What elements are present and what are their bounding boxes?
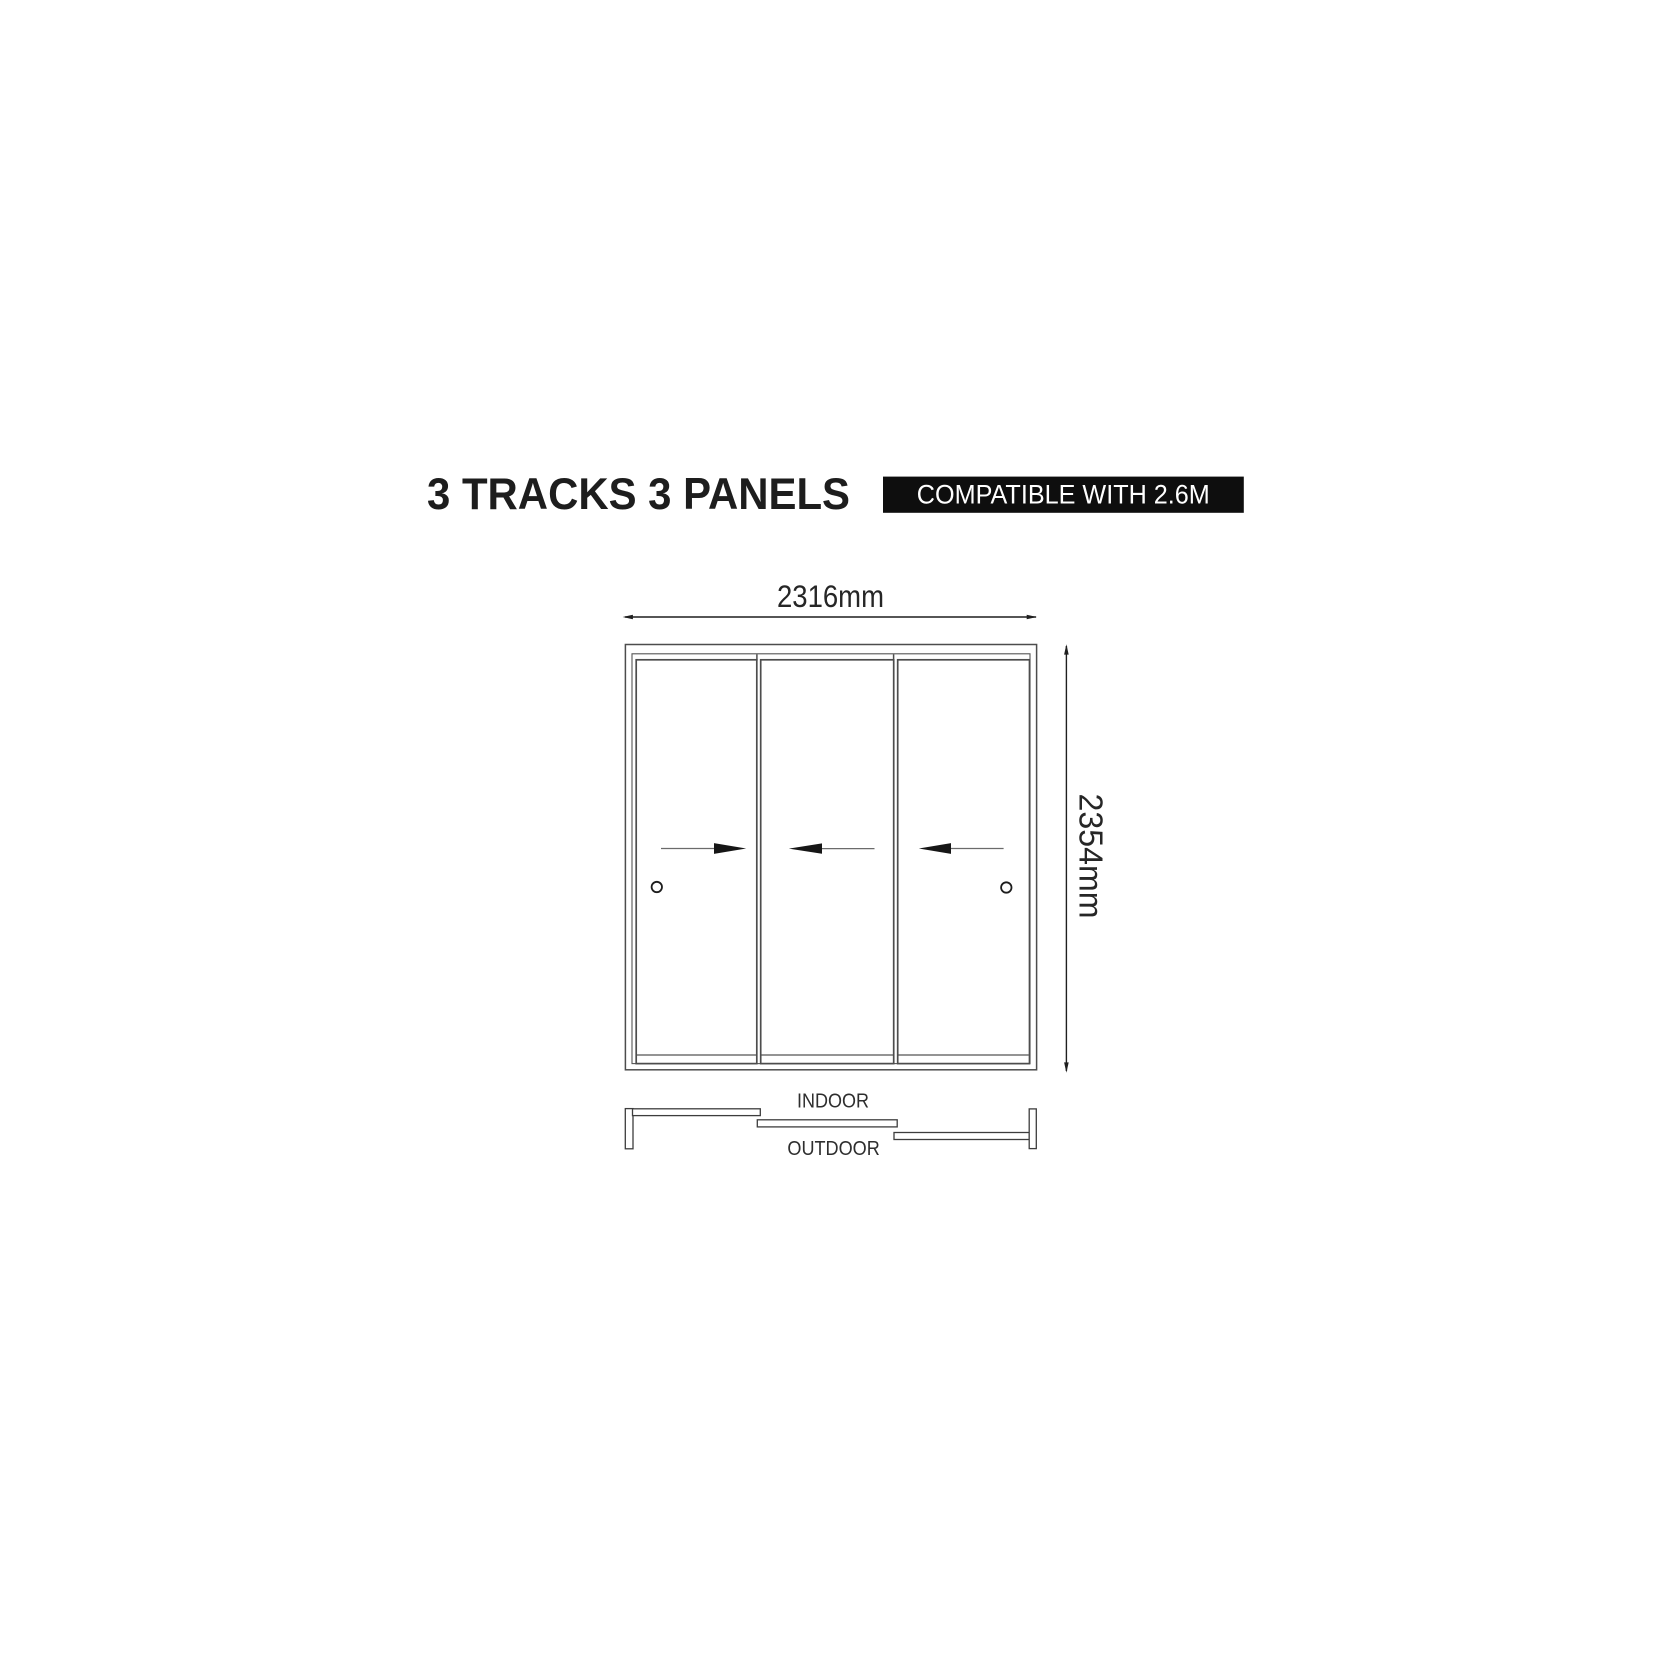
svg-text:2354mm: 2354mm bbox=[1072, 794, 1109, 919]
svg-text:INDOOR: INDOOR bbox=[797, 1089, 869, 1112]
svg-text:2316mm: 2316mm bbox=[777, 578, 884, 614]
svg-text:3 TRACKS 3 PANELS: 3 TRACKS 3 PANELS bbox=[427, 470, 850, 519]
svg-text:COMPATIBLE WITH 2.6M: COMPATIBLE WITH 2.6M bbox=[917, 480, 1210, 510]
svg-text:OUTDOOR: OUTDOOR bbox=[787, 1137, 879, 1160]
